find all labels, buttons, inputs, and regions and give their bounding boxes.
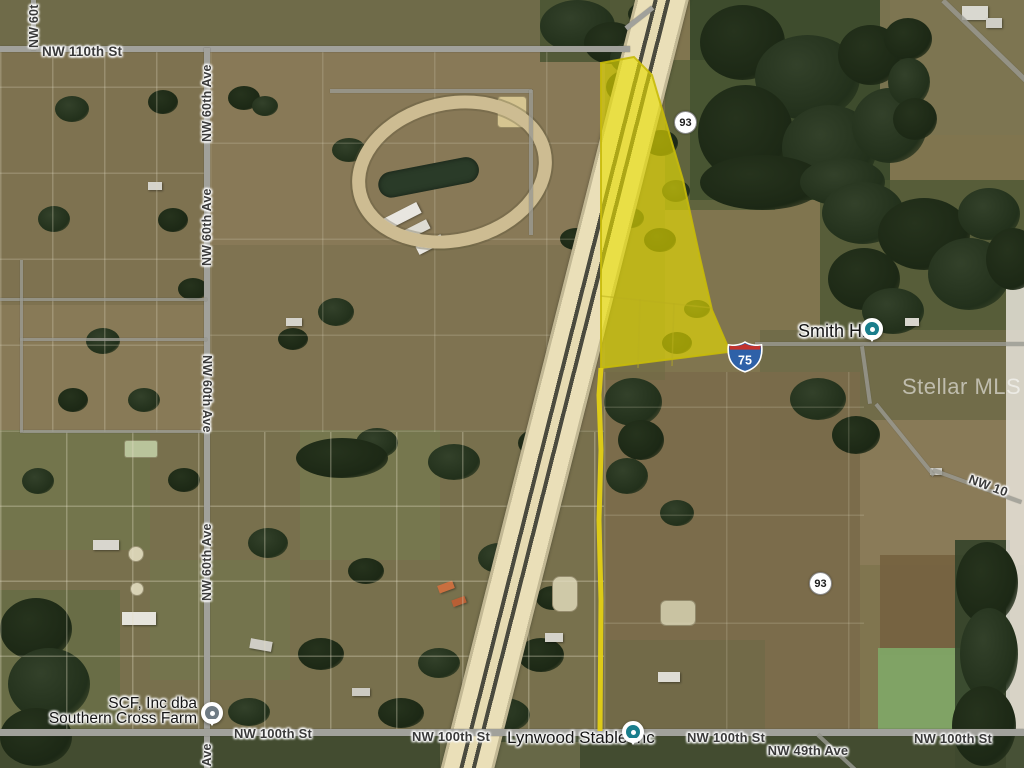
farm-building xyxy=(286,318,302,326)
street-label-nw49th: NW 49th Ave xyxy=(763,743,853,758)
street-label-nw100th-1: NW 100th St xyxy=(228,726,318,741)
road-farm-lane-3 xyxy=(20,430,207,433)
tree-cluster xyxy=(684,300,710,318)
tree-cluster xyxy=(318,298,354,326)
us-93-shield-top-text: 93 xyxy=(679,117,691,129)
street-label-nw60th-3: NW 60th Ave xyxy=(199,355,215,435)
tree-cluster xyxy=(128,388,160,412)
tree-cluster xyxy=(22,468,54,494)
lynwood-marker[interactable] xyxy=(622,721,644,743)
tree-cluster xyxy=(168,468,200,492)
farm-building xyxy=(93,540,119,550)
riding-arena xyxy=(130,582,144,596)
street-label-nw60th-1: NW 60th Ave xyxy=(199,64,215,142)
interstate-75-shield-text: 75 xyxy=(738,354,752,368)
farm-building xyxy=(148,182,162,190)
street-label-nw60th-4: NW 60th Ave xyxy=(199,521,215,601)
satellite-map-canvas[interactable]: 93 93 75 NW 60t NW 110th St NW 60th Ave … xyxy=(0,0,1024,768)
tree-cluster xyxy=(428,444,480,480)
us-93-shield-bottom: 93 xyxy=(809,572,832,595)
us-93-shield-bottom-text: 93 xyxy=(814,578,826,590)
tree-cluster xyxy=(86,328,120,354)
tree-cluster xyxy=(252,96,278,116)
road-track-east xyxy=(529,90,533,235)
place-label-scf: SCF, Inc dba Southern Cross Farm xyxy=(47,696,197,726)
road-smith-hill xyxy=(755,342,1024,346)
riding-arena xyxy=(128,546,144,562)
tree-cluster xyxy=(952,686,1016,766)
farm-building xyxy=(986,18,1002,28)
scf-marker[interactable] xyxy=(201,702,223,724)
tree-cluster xyxy=(790,378,846,420)
tree-cluster xyxy=(832,416,880,454)
tree-cluster xyxy=(418,648,460,678)
farm-building xyxy=(962,6,988,20)
road-farm-lane-v xyxy=(20,260,23,432)
street-label-nw100th-3: NW 100th St xyxy=(681,730,771,745)
road-track-north xyxy=(330,89,532,93)
farm-building xyxy=(658,672,680,682)
tree-cluster xyxy=(662,332,692,354)
riding-arena xyxy=(124,440,158,458)
street-label-nw60th-bottom-cut: NW 60th Ave xyxy=(199,737,215,768)
riding-arena xyxy=(660,600,696,626)
tree-cluster xyxy=(606,458,648,494)
us-93-shield-top: 93 xyxy=(674,111,697,134)
terrain-patch xyxy=(0,50,207,305)
street-label-nw110th: NW 110th St xyxy=(42,44,122,59)
road-farm-lane-1 xyxy=(0,298,207,301)
terrain-patch xyxy=(0,305,207,435)
tree-cluster xyxy=(884,18,932,60)
tree-cluster xyxy=(148,90,178,114)
tree-cluster xyxy=(55,96,89,122)
riding-arena xyxy=(552,576,578,612)
tree-cluster xyxy=(618,420,664,460)
tree-cluster xyxy=(38,206,70,232)
street-label-nw60t-cut: NW 60t xyxy=(26,0,42,48)
tree-cluster xyxy=(298,638,344,670)
tree-cluster xyxy=(378,698,424,728)
street-label-nw60th-2: NW 60th Ave xyxy=(199,188,215,266)
tree-cluster xyxy=(893,98,937,140)
street-label-nw100th-2: NW 100th St xyxy=(406,729,496,744)
tree-cluster xyxy=(660,500,694,526)
tree-cluster xyxy=(278,328,308,350)
tree-cluster xyxy=(348,558,384,584)
place-label-scf-line2: Southern Cross Farm xyxy=(47,711,197,726)
tree-cluster xyxy=(158,208,188,232)
farm-building xyxy=(122,612,156,625)
stellar-mls-watermark: Stellar MLS xyxy=(902,374,1021,400)
place-label-scf-line1: SCF, Inc dba xyxy=(47,696,197,711)
tree-cluster xyxy=(248,528,288,558)
terrain-patch xyxy=(150,560,290,680)
tree-cluster xyxy=(58,388,88,412)
tree-cluster xyxy=(604,378,662,426)
interstate-75-shield: 75 xyxy=(726,341,764,373)
tree-cluster xyxy=(296,438,388,478)
tree-cluster xyxy=(662,180,690,202)
terrain-patch xyxy=(0,0,610,50)
tree-cluster xyxy=(644,228,676,252)
road-farm-lane-2 xyxy=(20,338,207,341)
farm-building xyxy=(352,688,370,696)
farm-building xyxy=(545,633,563,642)
tree-cluster xyxy=(228,698,270,726)
farm-building xyxy=(905,318,919,326)
street-label-nw100th-4: NW 100th St xyxy=(908,731,998,746)
smith-hill-marker[interactable] xyxy=(861,318,883,340)
